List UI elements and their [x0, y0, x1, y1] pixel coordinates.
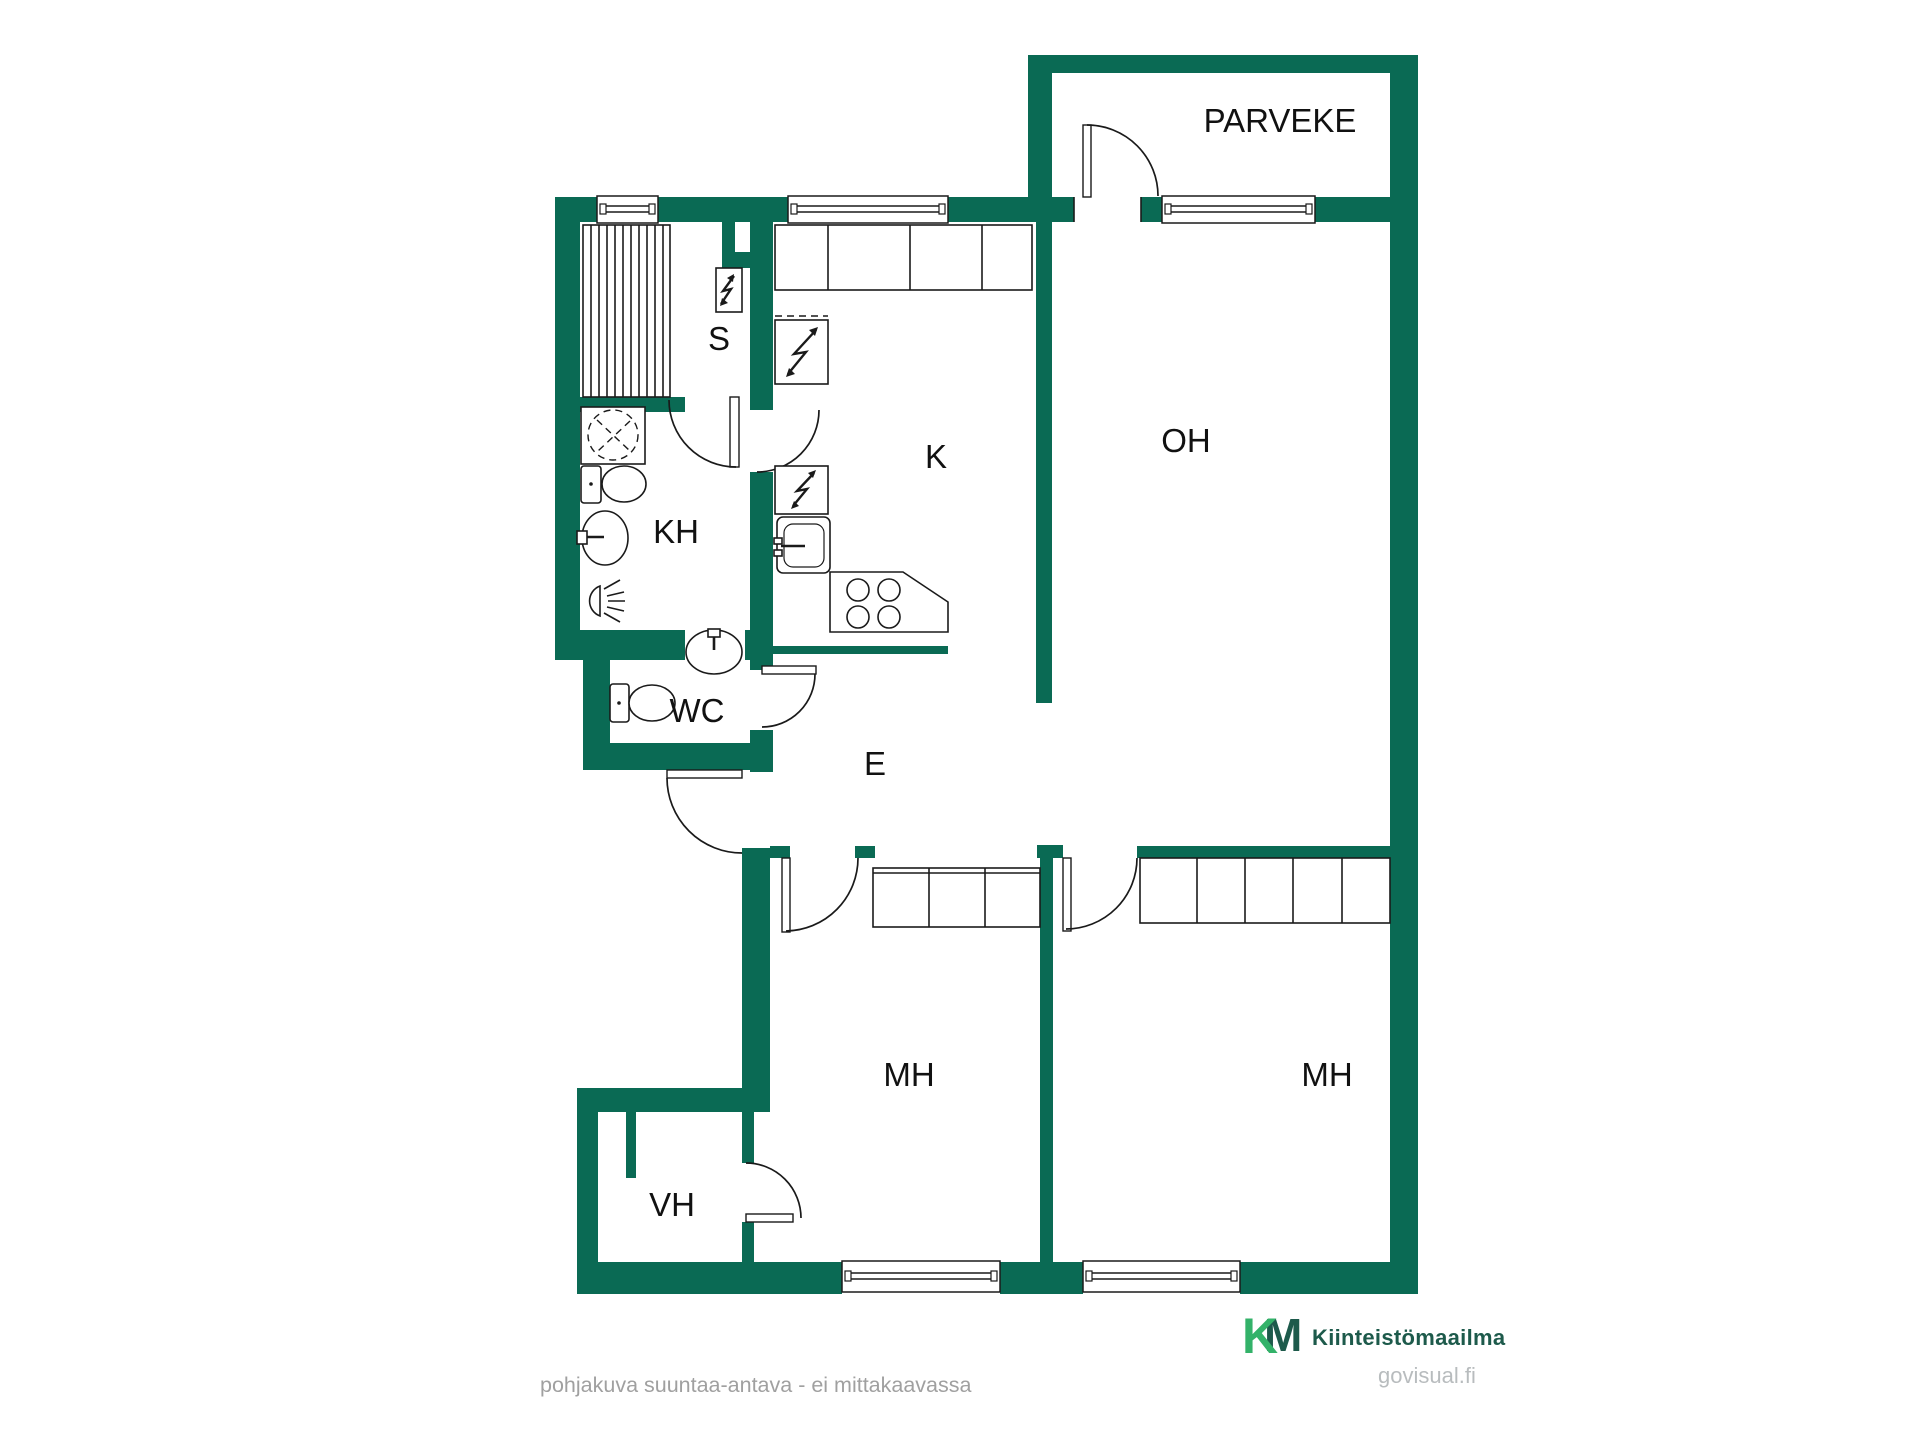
toilet-icon: [581, 466, 646, 503]
wardrobe-row: [873, 868, 1040, 927]
kitchen-sink-icon: [774, 517, 830, 573]
door-swing: [757, 410, 819, 472]
footer: pohjakuva suuntaa-antava - ei mittakaava…: [540, 1308, 1506, 1397]
stove-icon: [830, 572, 948, 632]
room-label-vaatehuone: VH: [649, 1186, 695, 1223]
door-swing: [762, 666, 816, 727]
toilet-icon: [610, 684, 675, 722]
website-text: govisual.fi: [1378, 1363, 1476, 1388]
room-label-kylpyhuone: KH: [653, 513, 699, 550]
kitchen-upper-cabinets: [775, 225, 1032, 290]
sink-icon: [686, 629, 742, 674]
door-swing: [782, 858, 858, 932]
window: [1162, 196, 1315, 223]
electrical-symbol: [775, 466, 828, 514]
room-label-makuuhuone-1: MH: [883, 1056, 934, 1093]
electrical-symbol: [716, 268, 742, 312]
room-label-sauna: S: [708, 320, 730, 357]
window: [597, 196, 658, 223]
window: [842, 1261, 1000, 1292]
ceiling-light-icon: [590, 580, 625, 622]
door-swing: [1063, 858, 1137, 931]
km-logo: M K Kiinteistömaailma: [1242, 1308, 1506, 1364]
brand-k-letter: K: [1242, 1308, 1278, 1364]
fixtures: [577, 225, 1390, 927]
sauna-bench-icon: [583, 225, 670, 397]
floorplan-page: PARVEKE S KH K OH WC E MH MH VH pohjakuv…: [0, 0, 1920, 1440]
brand-name: Kiinteistömaailma: [1312, 1325, 1506, 1350]
room-label-keittio: K: [925, 438, 947, 475]
wardrobe-row: [1140, 858, 1390, 923]
floorplan-drawing: PARVEKE S KH K OH WC E MH MH VH pohjakuv…: [0, 0, 1920, 1440]
room-label-wc: WC: [670, 692, 725, 729]
window: [788, 196, 948, 223]
sink-icon: [577, 511, 628, 565]
window: [1083, 1261, 1240, 1292]
door-swing: [667, 770, 742, 853]
disclaimer-text: pohjakuva suuntaa-antava - ei mittakaava…: [540, 1373, 971, 1397]
room-label-eteinen: E: [864, 745, 886, 782]
room-label-parveke: PARVEKE: [1204, 102, 1357, 139]
door-swing: [746, 1163, 801, 1222]
electrical-symbol: [775, 320, 828, 384]
room-label-makuuhuone-2: MH: [1301, 1056, 1352, 1093]
shower-icon: [581, 407, 645, 464]
room-label-olohuone: OH: [1161, 422, 1211, 459]
